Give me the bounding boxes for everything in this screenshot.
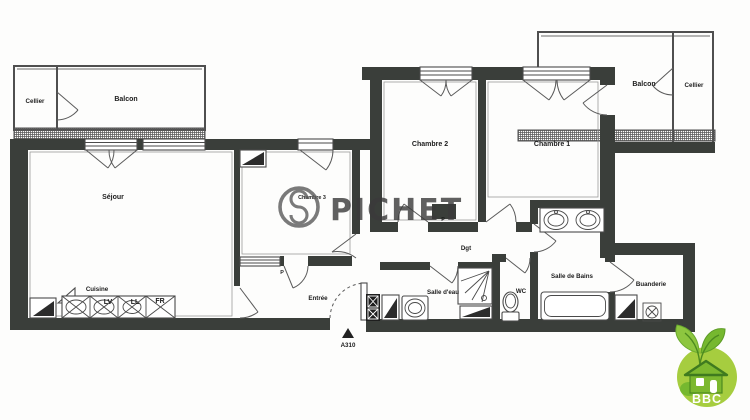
chambre2-window — [420, 67, 472, 96]
appliance-label-washer: LL — [131, 299, 140, 306]
room-label-sejour: Séjour — [102, 194, 124, 201]
chambre1-window — [523, 67, 590, 100]
room-label-buanderie: Buanderie — [636, 281, 667, 288]
double-vanity — [540, 208, 604, 232]
floor-drain — [643, 303, 661, 321]
appliance-label-dishwasher: LV — [104, 299, 113, 306]
pichet-watermark: PICHET — [280, 188, 463, 228]
unit-ref-label: A310 — [341, 342, 356, 349]
north-triangle-icon — [342, 328, 354, 338]
balcony-right-block — [518, 32, 715, 153]
washbasin — [402, 296, 428, 320]
windows — [85, 67, 590, 170]
unit-marker: A310 — [341, 328, 356, 349]
buanderie-door — [610, 262, 634, 292]
pichet-logo-icon — [280, 188, 318, 226]
room-label-cellier-left: Cellier — [26, 98, 46, 105]
floorplan-drawing: Cellier Balcon Séjour Cuisine Chambre 3 … — [0, 0, 750, 420]
appliance-label-fridge: FR — [155, 298, 164, 305]
bbc-logo: BBC — [676, 325, 737, 407]
chambre3-entree-door — [284, 266, 308, 288]
room-label-cellier-right: Cellier — [685, 82, 705, 89]
cellier-right-door-swing — [653, 68, 673, 95]
bbc-house-window — [696, 378, 704, 386]
toilet — [502, 292, 519, 321]
bathroom-fixtures — [540, 208, 609, 320]
room-label-balcon-left: Balcon — [114, 96, 137, 103]
sejour-window — [143, 139, 205, 150]
entry-door — [330, 283, 367, 320]
cellier-left-door-swing — [57, 92, 78, 120]
wc-door — [506, 258, 530, 273]
chambre1-balcony-door — [583, 85, 607, 115]
sejour-entree-door — [240, 288, 258, 318]
room-label-dgt: Dgt — [461, 245, 471, 252]
room-label-chambre2: Chambre 2 — [412, 141, 448, 148]
room-label-chambre1: Chambre 1 — [534, 141, 570, 148]
balcony-right-railing — [518, 130, 715, 141]
bbc-label: BBC — [692, 392, 722, 406]
room-label-chambre3: Chambre 3 — [298, 195, 326, 201]
sejour-french-door — [85, 139, 137, 168]
chambre3-window — [298, 139, 333, 170]
chambre1-door — [486, 204, 516, 222]
shower — [458, 268, 492, 304]
salle-eau-door — [430, 266, 458, 283]
room-label-balcon-right: Balcon — [632, 81, 655, 88]
entree-closet — [240, 257, 280, 266]
room-label-entree: Entrée — [308, 295, 328, 302]
floorplan-page: Cellier Balcon Séjour Cuisine Chambre 3 … — [0, 0, 750, 420]
bathtub — [541, 292, 609, 320]
laundry-fixtures — [615, 295, 661, 321]
room-label-wc: WC — [516, 288, 527, 295]
pichet-wordmark: PICHET — [330, 193, 463, 228]
closet-letter-entree: P — [280, 270, 284, 276]
balcony-left-railing — [14, 128, 205, 139]
room-label-cuisine: Cuisine — [86, 286, 109, 293]
room-label-salle-eau: Salle d'eau — [427, 289, 459, 296]
room-label-salle-bains: Salle de Bains — [551, 273, 594, 280]
